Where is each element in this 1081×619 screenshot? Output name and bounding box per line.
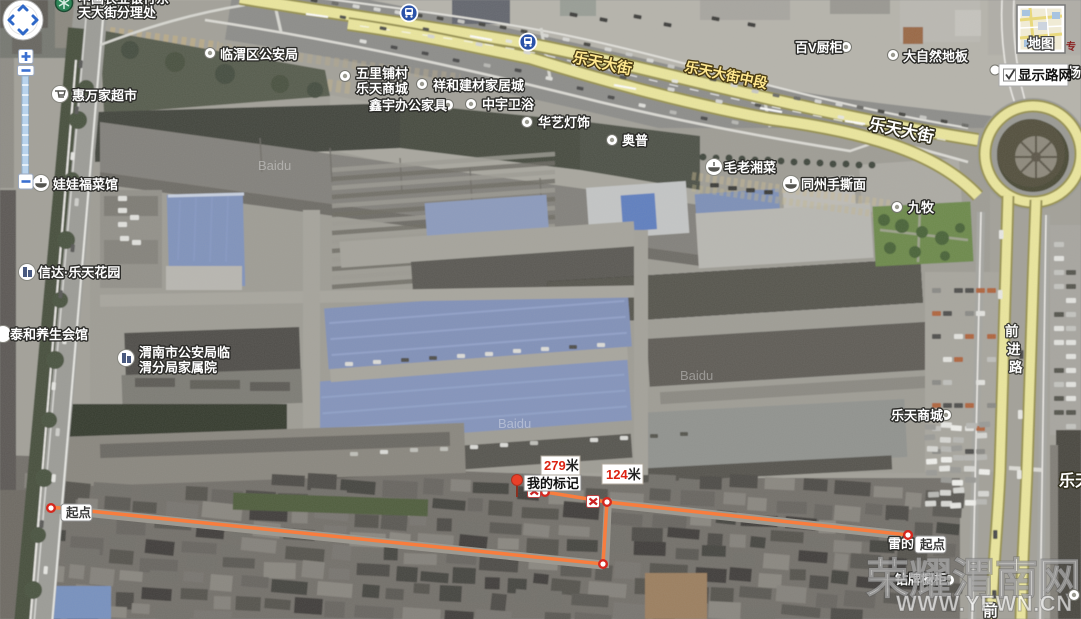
svg-text:起点: 起点 [65, 505, 92, 520]
svg-text:乐天: 乐天 [1059, 472, 1081, 490]
svg-text:大自然地板: 大自然地板 [903, 49, 969, 64]
svg-text:鑫宇办公家具: 鑫宇办公家具 [368, 98, 447, 113]
svg-text:乐天商城: 乐天商城 [356, 81, 408, 96]
svg-text:奥普: 奥普 [622, 133, 648, 148]
svg-text:渭分局家属院: 渭分局家属院 [139, 360, 217, 375]
svg-text:124米: 124米 [606, 467, 642, 482]
svg-text:显示路网: 显示路网 [1018, 67, 1072, 83]
svg-text:五里铺村: 五里铺村 [356, 66, 408, 81]
svg-text:进: 进 [1007, 342, 1021, 357]
svg-text:百V厨柜: 百V厨柜 [795, 40, 843, 55]
svg-text:同州手撕面: 同州手撕面 [801, 177, 866, 192]
svg-text:Baidu: Baidu [498, 416, 531, 431]
svg-text:Baidu: Baidu [258, 158, 291, 173]
svg-text:我的标记: 我的标记 [527, 476, 579, 491]
svg-text:天大街分理处: 天大街分理处 [78, 5, 157, 20]
svg-text:毛老湘菜: 毛老湘菜 [724, 160, 776, 175]
svg-text:娃娃福菜馆: 娃娃福菜馆 [52, 177, 118, 192]
svg-text:临渭区公安局: 临渭区公安局 [220, 47, 298, 62]
svg-text:WWW.YEWN.CN: WWW.YEWN.CN [896, 591, 1073, 616]
svg-text:乐天商城: 乐天商城 [891, 408, 943, 423]
svg-text:华艺灯饰: 华艺灯饰 [538, 115, 590, 130]
svg-text:路: 路 [1009, 359, 1023, 375]
svg-text:中宇卫浴: 中宇卫浴 [482, 97, 535, 112]
svg-text:279米: 279米 [544, 458, 580, 473]
svg-text:惠万家超市: 惠万家超市 [72, 88, 137, 103]
svg-text:渭南市公安局临: 渭南市公安局临 [139, 345, 230, 360]
svg-text:信达·乐天花园: 信达·乐天花园 [38, 265, 120, 280]
svg-text:Baidu: Baidu [680, 368, 713, 383]
svg-text:地图: 地图 [1028, 36, 1054, 51]
svg-text:起点: 起点 [919, 537, 946, 552]
svg-text:专: 专 [1066, 40, 1076, 53]
svg-text:泰和养生会馆: 泰和养生会馆 [9, 327, 88, 342]
svg-text:前: 前 [1005, 323, 1019, 339]
svg-text:祥和建材家居城: 祥和建材家居城 [433, 78, 524, 93]
svg-text:九牧: 九牧 [907, 200, 935, 215]
